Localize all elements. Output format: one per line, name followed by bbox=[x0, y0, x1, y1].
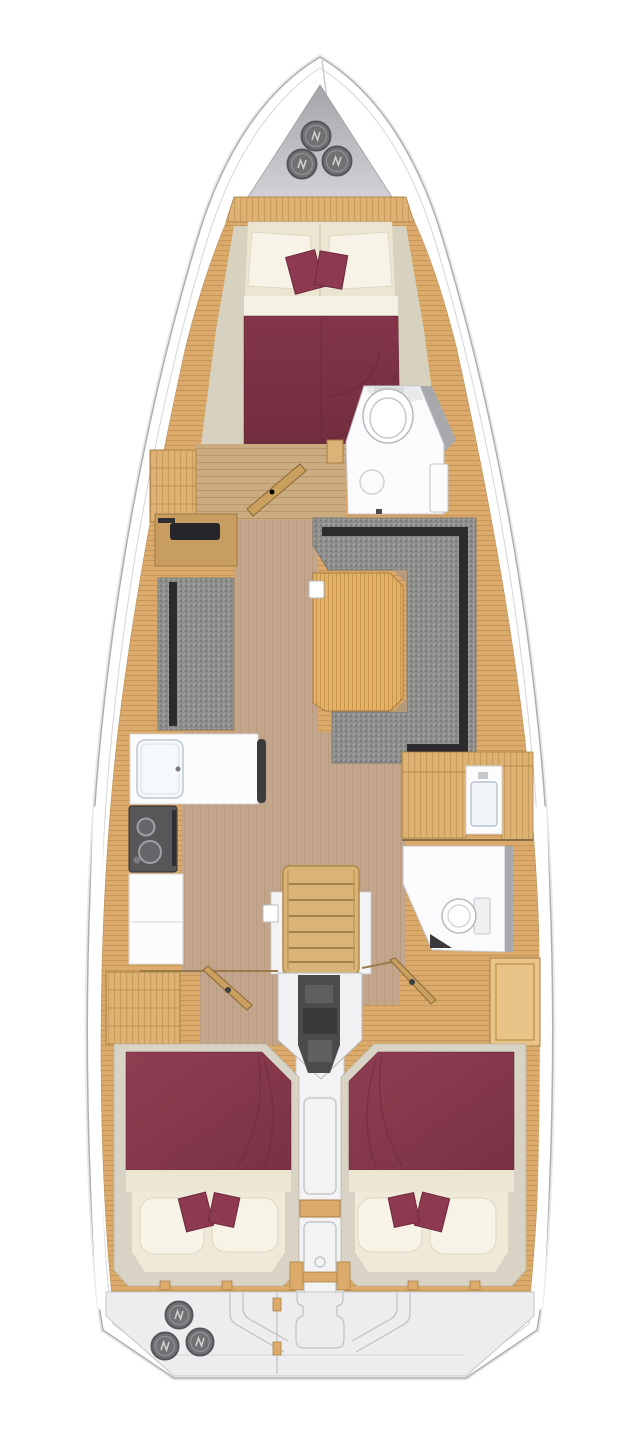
port-settee bbox=[158, 578, 234, 730]
fwd-headboard-band bbox=[244, 296, 398, 316]
stern-wood-rail bbox=[290, 1262, 303, 1290]
stern-wood-rail bbox=[337, 1262, 350, 1290]
bow-shelf-rim bbox=[226, 197, 414, 222]
stbd-accent-pillow-2 bbox=[388, 1193, 420, 1228]
fwd-accent-pillow-right bbox=[314, 251, 347, 289]
stern-wood-rail bbox=[303, 1272, 337, 1282]
steps-flank-left bbox=[271, 892, 283, 974]
stove-handle bbox=[172, 810, 176, 866]
salon-sofa bbox=[309, 518, 476, 763]
stern-hatch-icon bbox=[187, 1329, 214, 1356]
aft-head-wall-gray bbox=[505, 846, 513, 952]
nav-desk-inset bbox=[170, 523, 220, 540]
stbd-bed-foot-band bbox=[349, 1170, 514, 1192]
channel-wood-tie bbox=[300, 1200, 340, 1217]
sofa-trim-right bbox=[459, 527, 468, 752]
stern-wood-tick bbox=[222, 1281, 232, 1290]
nav-station bbox=[155, 514, 237, 566]
galley-faucet bbox=[176, 767, 181, 772]
stove-burner-large bbox=[139, 841, 161, 863]
yacht-floor-plan-image bbox=[0, 0, 640, 1445]
salon-table bbox=[313, 573, 403, 711]
stbd-aft-locker bbox=[490, 958, 540, 1046]
galley-handle-rail bbox=[257, 739, 266, 803]
aft-head-faucet bbox=[478, 772, 488, 779]
stern-hatch-icon bbox=[166, 1302, 193, 1329]
fwd-head-floor-fitting bbox=[376, 509, 382, 514]
stern-hatch-icon bbox=[152, 1333, 179, 1360]
fwd-cabin-door-handle bbox=[270, 490, 275, 495]
stern-wood-tick bbox=[160, 1281, 170, 1290]
sofa-trim-bottom bbox=[407, 744, 468, 752]
port-door-floor bbox=[200, 973, 283, 1045]
port-accent-pillow-2 bbox=[208, 1193, 240, 1228]
forward-head bbox=[346, 386, 456, 514]
salon-floor bbox=[235, 520, 318, 732]
engine-detail-2 bbox=[303, 1008, 337, 1034]
transom-wood-tick bbox=[273, 1298, 281, 1311]
aft-head-cabinet-left bbox=[402, 772, 466, 838]
port-bed-foot-band bbox=[126, 1170, 291, 1192]
fwd-head-door-panel bbox=[430, 464, 448, 512]
nav-desk-corner-tick bbox=[158, 518, 175, 523]
aft-head-cabinet-right bbox=[502, 766, 533, 840]
stern-wood-tick bbox=[470, 1281, 480, 1290]
stove-burner-small bbox=[138, 819, 155, 836]
table-latch bbox=[309, 581, 324, 598]
aft-toilet bbox=[442, 899, 476, 933]
settee-back-trim bbox=[169, 582, 177, 726]
companionway-steps bbox=[283, 866, 359, 974]
steps-flank-right bbox=[359, 892, 371, 974]
aft-cabin-starboard bbox=[341, 1044, 526, 1286]
engine-detail-3 bbox=[308, 1040, 332, 1062]
port-door-handle bbox=[225, 987, 231, 993]
stove-knob bbox=[134, 857, 141, 864]
bow-hatch-icon bbox=[288, 150, 317, 179]
floor-plan-svg bbox=[0, 0, 640, 1445]
aft-head-sink bbox=[471, 782, 497, 826]
bow-hatch-icon bbox=[323, 147, 352, 176]
corridor-step bbox=[327, 440, 343, 463]
aft-cabin-port bbox=[114, 1044, 299, 1286]
bow-hatch-icon bbox=[302, 122, 331, 151]
stbd-door-handle bbox=[409, 979, 415, 985]
transom-wood-tick bbox=[273, 1342, 281, 1355]
engine-detail-1 bbox=[305, 985, 333, 1003]
sofa-trim-top bbox=[322, 527, 468, 536]
galley-lower-counter bbox=[129, 874, 183, 964]
steps-side-pad bbox=[263, 905, 278, 922]
stern-wood-tick bbox=[408, 1281, 418, 1290]
